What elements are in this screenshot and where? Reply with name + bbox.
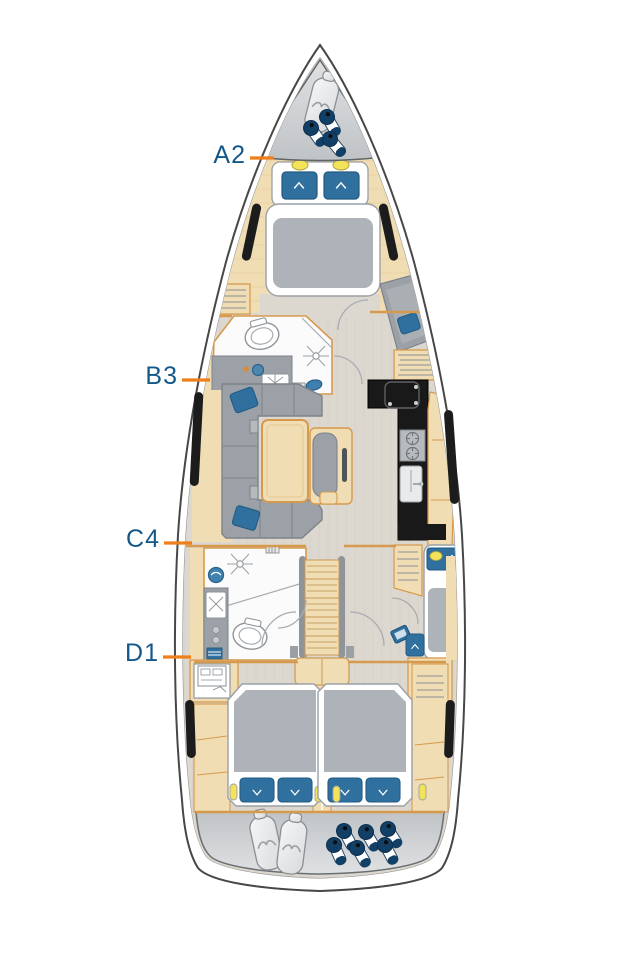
label-b3-text: B3 <box>145 362 178 390</box>
fore-reading-light-port <box>292 160 308 170</box>
aft-head-sink <box>206 592 226 618</box>
galley-aft-locker <box>398 524 446 540</box>
stair-steps <box>305 560 339 655</box>
fridge-handle <box>388 402 392 406</box>
vanity-knob-1 <box>213 627 220 634</box>
nav-hanging-locker <box>394 545 422 596</box>
nav-seat-cushion <box>406 634 424 656</box>
aft-head-basin <box>209 568 224 583</box>
fore-cabin-aisle <box>260 294 380 318</box>
nav-reading-light <box>430 552 442 561</box>
port-light-outboard <box>230 784 237 800</box>
label-a2-text: A2 <box>213 141 246 169</box>
fore-berth-mattress-inner <box>273 218 373 288</box>
salon-table <box>262 420 308 502</box>
stair-hinge-port <box>290 646 298 658</box>
port-berth-mattress <box>234 690 316 772</box>
towel-stack-icon <box>207 648 222 659</box>
stern-lazarette <box>196 807 444 875</box>
stair-hinge-starboard <box>346 646 354 658</box>
yacht-deck-plan: A2 B3 C4 D1 <box>0 0 640 960</box>
port-side-locker <box>194 704 230 812</box>
starboard-berth-mattress <box>324 690 406 772</box>
port-corner-cabinet <box>198 666 226 686</box>
bench-handle-slot <box>342 448 347 482</box>
aft-cabin-starboard <box>318 664 448 812</box>
starboard-side-locker <box>412 664 448 812</box>
deck-plan-canvas: A2 B3 C4 D1 <box>0 0 640 960</box>
vanity-knob-2 <box>213 637 220 644</box>
galley-sink-icon <box>400 466 423 502</box>
starboard-light-outboard <box>419 784 426 800</box>
label-c4-text: C4 <box>126 525 160 553</box>
fore-reading-light-starboard <box>333 160 349 170</box>
soap-dispenser-icon <box>243 366 248 371</box>
fridge-hinge-top <box>414 385 418 389</box>
fridge-hinge-bottom <box>414 401 418 405</box>
starboard-light-inboard <box>333 786 340 802</box>
salon-stool <box>320 492 337 504</box>
stove-icon <box>400 430 425 461</box>
bow-locker <box>256 60 384 161</box>
fore-head-basin <box>253 365 264 376</box>
label-d1-text: D1 <box>125 639 159 667</box>
